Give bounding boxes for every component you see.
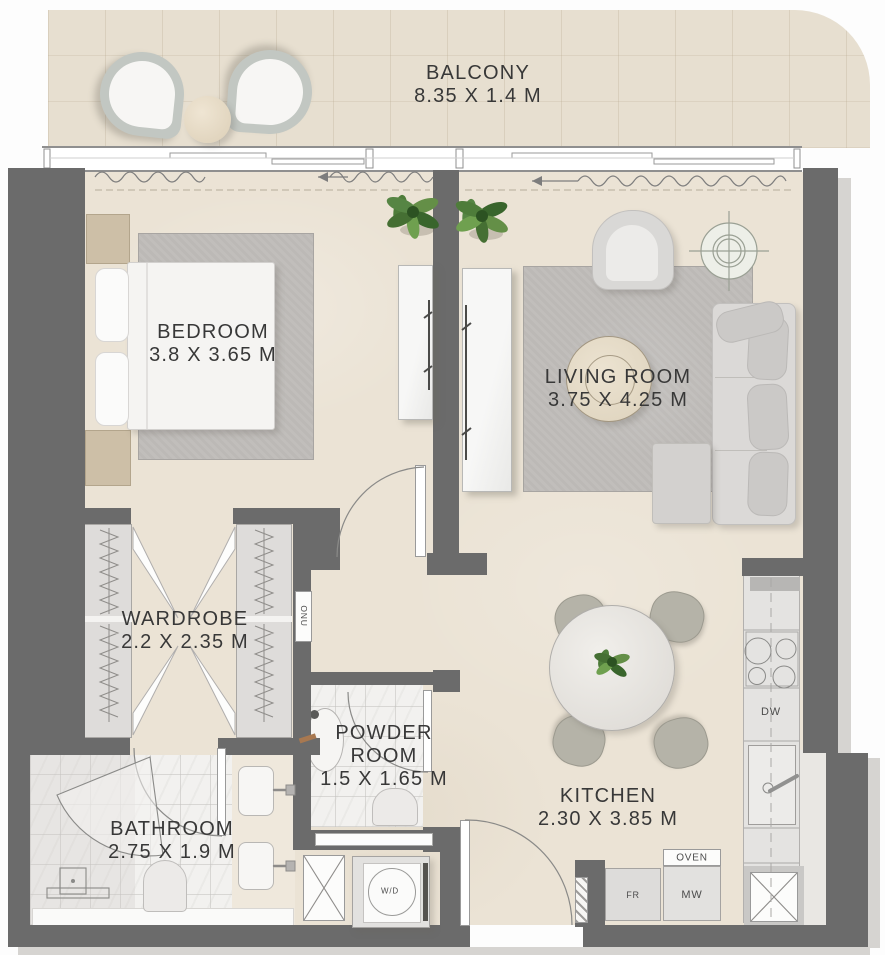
shaft-box-utility xyxy=(303,855,345,921)
wall-entry-left xyxy=(440,850,462,927)
shadow-right xyxy=(838,178,851,755)
dishwasher-label: DW xyxy=(761,706,781,718)
bathroom-name: BATHROOM xyxy=(110,818,234,840)
entrance-jamb-hatch xyxy=(575,877,588,923)
room-label-living-room: LIVING ROOM 3.75 X 4.25 M xyxy=(498,366,738,412)
wardrobe-dims: 2.2 X 2.35 M xyxy=(121,631,249,653)
bathroom-dims: 2.75 X 1.9 M xyxy=(108,841,236,863)
bedroom-marble-console xyxy=(398,265,433,420)
powder-room-name: POWDER ROOM xyxy=(335,722,432,767)
living-room-name: LIVING ROOM xyxy=(545,366,692,388)
microwave-label: MW xyxy=(681,889,702,901)
armchair-seat xyxy=(606,225,658,281)
right-lower-floor-strip xyxy=(800,750,828,925)
entrance-door-leaf xyxy=(460,820,470,926)
kitchen-dims: 2.30 X 3.85 M xyxy=(538,808,678,830)
kitchen-sink-cabinet xyxy=(748,745,796,825)
kitchen-top-shelf xyxy=(750,577,800,591)
wall-bottom-right-block xyxy=(826,753,868,947)
room-label-bathroom: BATHROOM 2.75 X 1.9 M xyxy=(62,818,282,864)
wall-kitchen-top xyxy=(742,558,804,576)
wall-wardrobe-pier xyxy=(308,508,340,570)
room-label-bedroom: BEDROOM 3.8 X 3.65 M xyxy=(103,321,323,367)
ottoman xyxy=(652,443,711,524)
wall-bottom-left xyxy=(8,925,470,947)
window-glazing-lines xyxy=(42,148,802,170)
bedroom-dims: 3.8 X 3.65 M xyxy=(149,344,277,366)
kitchen-name: KITCHEN xyxy=(560,785,656,807)
washer-dryer-label: W/D xyxy=(381,887,399,896)
bathroom-sink-top xyxy=(238,766,274,816)
room-label-wardrobe: WARDROBE 2.2 X 2.35 M xyxy=(75,608,295,654)
utility-closet-door xyxy=(315,833,433,846)
wall-left-lower xyxy=(8,755,30,947)
shaft-box-kitchen xyxy=(750,872,798,922)
wall-powder-top xyxy=(305,672,435,685)
sofa-back-cushion-3 xyxy=(747,451,789,516)
balcony-side-table xyxy=(184,96,231,143)
wall-bathroom-top-right xyxy=(218,738,320,755)
sofa-seat-line-2 xyxy=(715,450,767,451)
wall-right-upper xyxy=(803,168,838,753)
window-band xyxy=(42,146,802,172)
floor-plan: BALCONY 8.35 X 1.4 M BEDROOM 3.8 X 3.65 … xyxy=(0,0,885,955)
room-label-powder-room: POWDER ROOM 1.5 X 1.65 M xyxy=(311,722,457,791)
balcony-name: BALCONY xyxy=(426,62,530,84)
powder-faucet-dot xyxy=(310,710,319,719)
dining-table xyxy=(549,605,675,731)
washer-dryer-door-edge xyxy=(423,863,428,921)
wall-hall-stub xyxy=(427,553,487,575)
balcony-dims: 8.35 X 1.4 M xyxy=(414,85,542,107)
bedroom-name: BEDROOM xyxy=(157,321,269,343)
living-room-dims: 3.75 X 4.25 M xyxy=(548,389,688,411)
bedroom-door-leaf xyxy=(415,465,426,557)
wall-bathroom-top-left xyxy=(30,738,130,755)
shadow-bottom xyxy=(18,947,870,955)
onu-label: ONU xyxy=(299,605,309,626)
bedroom-nightstand xyxy=(86,214,130,264)
powder-room-dims: 1.5 X 1.65 M xyxy=(320,768,448,790)
oven-label: OVEN xyxy=(676,853,708,864)
room-label-kitchen: KITCHEN 2.30 X 3.85 M xyxy=(498,785,718,831)
wall-powder-right-top xyxy=(433,670,460,692)
wall-left-upper xyxy=(8,168,85,755)
wardrobe-name: WARDROBE xyxy=(122,608,249,630)
room-label-balcony: BALCONY 8.35 X 1.4 M xyxy=(368,62,588,108)
wall-wardrobe-top-right xyxy=(233,508,313,524)
sofa-back-cushion-2 xyxy=(746,383,789,451)
shadow-right-lower xyxy=(868,758,880,948)
powder-toilet xyxy=(372,788,418,826)
wall-bedroom-living-divider xyxy=(433,170,459,555)
chair-cushion xyxy=(235,57,305,127)
chair-cushion xyxy=(106,58,179,131)
wall-wardrobe-top-left xyxy=(85,508,131,524)
bedroom-bench xyxy=(85,430,131,486)
fridge-label: FR xyxy=(626,890,640,900)
bathroom-toilet xyxy=(143,860,187,912)
armchair xyxy=(592,210,674,290)
